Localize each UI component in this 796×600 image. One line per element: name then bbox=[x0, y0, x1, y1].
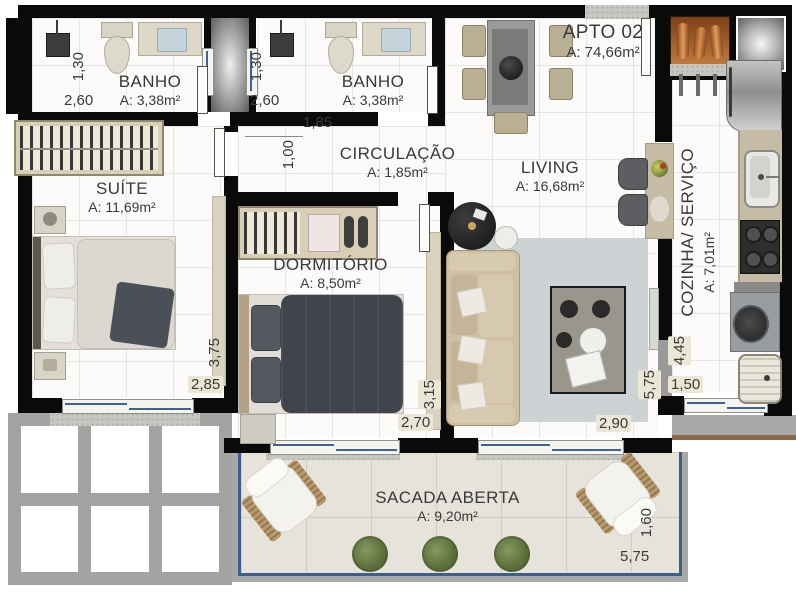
pillow bbox=[457, 381, 486, 410]
pillow bbox=[457, 335, 487, 365]
dim-suite-width: 2,85 bbox=[188, 376, 223, 393]
room-area-cozinha: A: 7,01m² bbox=[701, 232, 717, 293]
wall-suite-dorm-top bbox=[224, 126, 238, 132]
wall-suite-bottom-a bbox=[18, 398, 62, 413]
folded-shirt bbox=[308, 214, 340, 252]
living-sliding-door bbox=[478, 440, 624, 455]
dim-line-circulacao bbox=[245, 136, 303, 137]
dining-table bbox=[487, 20, 535, 116]
entrance-recess bbox=[585, 5, 649, 19]
room-area: A: 3,38m² bbox=[95, 92, 205, 109]
dorm-sliding-door bbox=[270, 440, 400, 455]
kitchen-pass-panel bbox=[649, 288, 659, 350]
magazine bbox=[565, 350, 607, 388]
kitchen-outer-slab bbox=[672, 415, 796, 437]
dim-circulacao-width: 1,85 bbox=[303, 114, 332, 131]
dim-dorm-width: 2,70 bbox=[398, 414, 433, 431]
room-label-sacada: SACADA ABERTA A: 9,20m² bbox=[365, 488, 530, 525]
sofa bbox=[446, 250, 520, 426]
apartment-name: APTO 02 bbox=[548, 22, 658, 44]
pergola bbox=[8, 413, 232, 585]
kitchen-sink bbox=[744, 150, 780, 208]
kitchen-slab-edge bbox=[672, 435, 796, 440]
plant bbox=[422, 536, 458, 572]
apartment-label: APTO 02 A: 74,66m² bbox=[548, 22, 658, 62]
room-name: SUÍTE bbox=[62, 179, 182, 199]
room-area: A: 3,38m² bbox=[318, 92, 428, 109]
room-label-banho1: BANHO A: 3,38m² bbox=[95, 72, 205, 109]
plant bbox=[352, 536, 388, 572]
wall-dorm-top-a bbox=[238, 192, 398, 206]
dim-banho1-width: 2,60 bbox=[64, 92, 93, 109]
table-centerpiece bbox=[499, 56, 523, 80]
wall-suite-bottom-b bbox=[192, 398, 238, 413]
pillow bbox=[42, 242, 76, 290]
dim-sacada-width: 5,75 bbox=[620, 548, 649, 565]
bar-stool bbox=[618, 194, 648, 226]
fridge bbox=[726, 60, 782, 132]
room-area: A: 16,68m² bbox=[495, 178, 605, 195]
room-name: SACADA ABERTA bbox=[365, 488, 530, 508]
dim-cozinha-width: 1,50 bbox=[668, 376, 703, 393]
laundry-tub bbox=[738, 354, 782, 404]
room-label-banho2: BANHO A: 3,38m² bbox=[318, 72, 428, 109]
gas-pipe bbox=[713, 74, 717, 96]
room-area: A: 1,85m² bbox=[320, 164, 475, 181]
dim-circulacao-height: 1,00 bbox=[280, 140, 297, 169]
ventilation-shaft bbox=[211, 18, 249, 112]
gas-shaft bbox=[670, 16, 730, 66]
pillow bbox=[457, 287, 488, 318]
dorm-nightstand bbox=[240, 414, 276, 444]
dorm-bed bbox=[238, 294, 404, 414]
bar-counter bbox=[645, 143, 674, 239]
suite-door-leaf bbox=[214, 128, 225, 177]
banho2-door-leaf bbox=[427, 66, 438, 114]
suite-bed bbox=[32, 236, 176, 350]
suite-window bbox=[62, 399, 194, 414]
dining-chair bbox=[462, 25, 486, 57]
dim-suite-height: 3,75 bbox=[206, 338, 223, 367]
room-name: CIRCULAÇÃO bbox=[320, 144, 475, 164]
wall-suite-dorm bbox=[224, 176, 238, 412]
shower-arm bbox=[56, 20, 58, 34]
headboard bbox=[33, 237, 41, 349]
dim-living-width: 2,90 bbox=[596, 415, 631, 432]
dim-banho2-width: 2,60 bbox=[250, 92, 279, 109]
wall-living-bottom bbox=[622, 438, 672, 453]
room-label-living: LIVING A: 16,68m² bbox=[495, 158, 605, 195]
dim-sacada-height: 1,60 bbox=[638, 508, 655, 537]
vanity-counter bbox=[362, 22, 426, 56]
wall-kitchen-bottom-left bbox=[658, 396, 684, 415]
kitchen-shelf-divider bbox=[734, 282, 780, 292]
gas-pipe bbox=[696, 74, 700, 96]
shower-head bbox=[270, 33, 294, 57]
dim-dorm-height: 3,15 bbox=[418, 380, 441, 409]
room-name: LIVING bbox=[495, 158, 605, 178]
room-name: BANHO bbox=[318, 72, 428, 92]
suite-closet bbox=[14, 120, 164, 176]
room-area: A: 8,50m² bbox=[258, 275, 403, 292]
pillow bbox=[251, 305, 281, 351]
dim-banho2-height: 1,30 bbox=[248, 52, 265, 81]
washing-machine bbox=[730, 292, 780, 352]
gas-cylinder bbox=[692, 26, 707, 59]
room-name: DORMITÓRIO bbox=[258, 255, 403, 275]
dim-banho1-height: 1,30 bbox=[70, 52, 87, 81]
dim-living-height: 5,75 bbox=[638, 370, 661, 399]
room-label-dormitorio: DORMITÓRIO A: 8,50m² bbox=[258, 255, 403, 292]
duvet bbox=[281, 295, 403, 413]
shoes bbox=[344, 216, 354, 248]
shoes bbox=[358, 216, 368, 248]
room-label-cozinha: COZINHA/ SERVIÇO bbox=[678, 148, 698, 317]
apartment-area: A: 74,66m² bbox=[548, 44, 658, 62]
side-table-white bbox=[494, 226, 518, 250]
shower-arm bbox=[280, 20, 282, 34]
vanity-sink bbox=[157, 28, 187, 52]
suite-nightstand bbox=[34, 352, 66, 380]
cooktop bbox=[740, 220, 780, 274]
side-table-black bbox=[448, 202, 496, 250]
faucet bbox=[766, 176, 780, 178]
vanity-sink bbox=[381, 28, 411, 52]
dining-chair bbox=[462, 68, 486, 100]
vanity-counter bbox=[138, 22, 202, 56]
room-label-suite: SUÍTE A: 11,69m² bbox=[62, 179, 182, 216]
wall-left bbox=[18, 18, 32, 398]
wall-dorm-bottom-b bbox=[398, 438, 478, 453]
dorm-wardrobe bbox=[238, 206, 378, 260]
pillow bbox=[251, 357, 281, 403]
shower-head bbox=[46, 33, 70, 57]
room-name: BANHO bbox=[95, 72, 205, 92]
dorm-door-leaf bbox=[419, 204, 430, 252]
pillow bbox=[42, 296, 76, 344]
wall-banho-bottom-c bbox=[428, 112, 445, 126]
dining-chair bbox=[549, 68, 573, 100]
headboard bbox=[239, 295, 249, 413]
room-area: A: 9,20m² bbox=[365, 508, 530, 525]
wall-below-counter bbox=[658, 237, 672, 340]
room-label-circulacao: CIRCULAÇÃO A: 1,85m² bbox=[320, 144, 475, 181]
dining-chair bbox=[494, 112, 528, 134]
plant bbox=[494, 536, 530, 572]
gas-pipe bbox=[679, 74, 683, 96]
fruit-bowl bbox=[651, 160, 668, 177]
suite-window-sill bbox=[50, 412, 200, 426]
floor-plan: BANHO A: 3,38m² BANHO A: 3,38m² APTO 02 … bbox=[0, 0, 796, 600]
bar-stool bbox=[618, 158, 648, 190]
dim-cozinha-height: 4,45 bbox=[668, 336, 691, 365]
gas-cylinder bbox=[710, 25, 724, 60]
room-area: A: 11,69m² bbox=[62, 199, 182, 216]
gas-cylinder bbox=[677, 23, 689, 59]
throw-blanket bbox=[109, 281, 175, 348]
coffee-table bbox=[550, 286, 626, 394]
